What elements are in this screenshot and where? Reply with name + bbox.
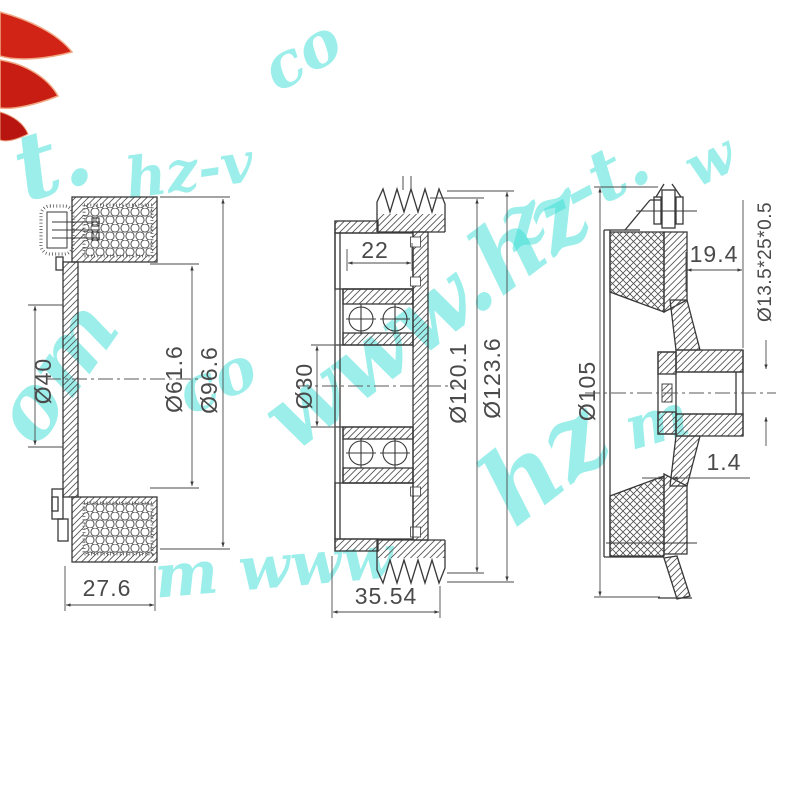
dim-194: 19.4 (690, 241, 739, 267)
dim-phi30: Ø30 (291, 363, 317, 409)
coil-mounting-lug-notch (52, 497, 58, 511)
dim-phi105: Ø105 (574, 361, 600, 421)
hub-boss-bottomwall (676, 414, 743, 436)
dim-22: 22 (361, 237, 389, 263)
pulley-hubflat-bottom (335, 539, 378, 551)
pulley-hubflat-top (335, 221, 378, 233)
bearing-bottom-outer-race (343, 468, 413, 483)
bearing-top-outer-race (343, 289, 413, 304)
coil-lower-tab (58, 519, 68, 541)
hub-boss-topwall (676, 350, 743, 372)
dim-276: 27.6 (83, 575, 132, 601)
bearing-top-inner-race (343, 333, 413, 345)
engineering-drawing-page: { "watermark": { "text": "www.hz-vt.com"… (0, 0, 800, 800)
dim-3554: 35.54 (355, 583, 418, 609)
dim-phi966: Ø96.6 (196, 346, 222, 414)
hub-tail (664, 556, 690, 599)
technical-drawing: Ø40 Ø61.6 Ø96.6 27.6 (0, 0, 800, 800)
bearing-bottom-inner-race (343, 427, 413, 439)
bearing-top-balls (346, 304, 410, 334)
coil-back-wall (63, 262, 78, 497)
hub-rubber-bottom (610, 476, 664, 556)
bearing-bottom-balls (346, 438, 410, 468)
coil-top-step (56, 257, 63, 270)
dim-phi1201: Ø120.1 (445, 342, 471, 423)
view-hub (585, 184, 776, 599)
hub-cone-top (670, 300, 700, 350)
hub-cone-bottom (670, 436, 700, 486)
dim-phi616: Ø61.6 (161, 345, 187, 413)
pulley-rim-bottom (377, 540, 445, 558)
pulley-rim-top (377, 214, 445, 232)
dim-phi40: Ø40 (30, 358, 56, 404)
dim-phi1236: Ø123.6 (479, 337, 505, 418)
hub-rubber-top (610, 232, 664, 312)
dim-14: 1.4 (707, 449, 742, 475)
pulley-hubblock-bottom (335, 483, 413, 539)
dim-spline: Ø13.5*25*0.5 (755, 202, 776, 322)
coil-bottom-winding (84, 503, 152, 554)
